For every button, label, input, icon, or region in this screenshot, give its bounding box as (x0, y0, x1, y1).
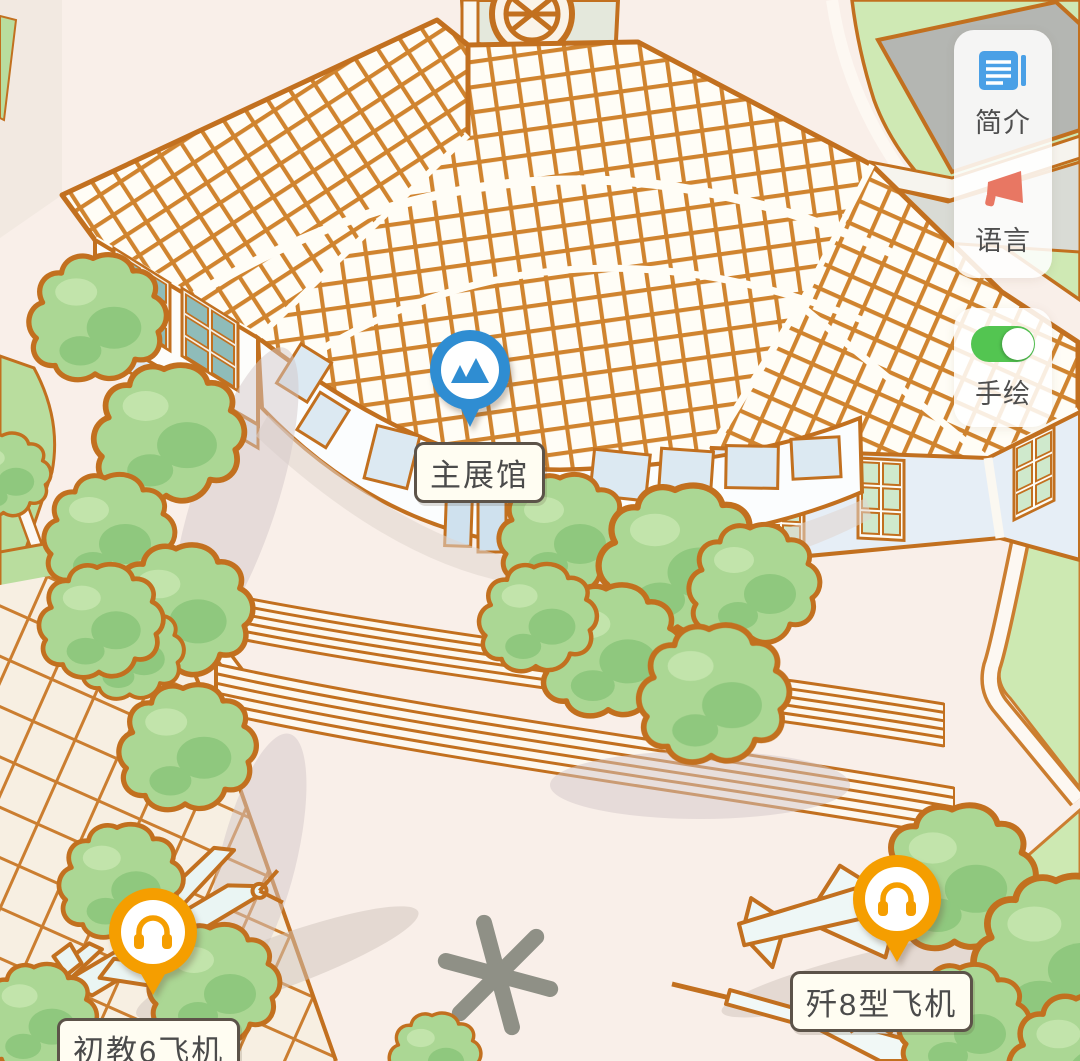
language-button[interactable]: 语言 (975, 168, 1031, 258)
intro-book-icon (978, 48, 1028, 94)
toggle-knob (1002, 328, 1034, 360)
marker-tail (881, 934, 913, 962)
map-canvas[interactable]: 主展馆 初教6飞机 歼8型飞机 简介 (0, 0, 1080, 1061)
hand-drawn-panel: 手绘 (954, 308, 1052, 427)
label-cj6-aircraft[interactable]: 初教6飞机 (57, 1018, 240, 1061)
marker-head (109, 888, 197, 976)
marker-head (430, 330, 510, 410)
label-main-hall[interactable]: 主展馆 (414, 442, 545, 503)
side-panel: 简介 语言 (954, 30, 1052, 278)
marker-head (853, 855, 941, 943)
hand-drawn-toggle[interactable] (971, 326, 1035, 362)
hand-drawn-label: 手绘 (975, 372, 1031, 411)
marker-inner-circle (441, 341, 499, 399)
label-j8-aircraft[interactable]: 歼8型飞机 (790, 971, 973, 1032)
headphones-icon (132, 913, 174, 951)
marker-j8-aircraft[interactable] (853, 855, 941, 962)
marker-inner-circle (121, 900, 185, 964)
intro-button[interactable]: 简介 (975, 48, 1031, 140)
intro-label: 简介 (975, 101, 1031, 140)
marker-tail (457, 401, 483, 427)
marker-cj6-aircraft[interactable] (109, 888, 197, 995)
headphones-icon (876, 880, 918, 918)
marker-inner-circle (865, 867, 929, 931)
mountains-icon (449, 355, 491, 385)
megaphone-icon (979, 168, 1027, 212)
language-label: 语言 (975, 219, 1031, 258)
marker-tail (137, 967, 169, 995)
marker-main-hall[interactable] (430, 330, 510, 427)
